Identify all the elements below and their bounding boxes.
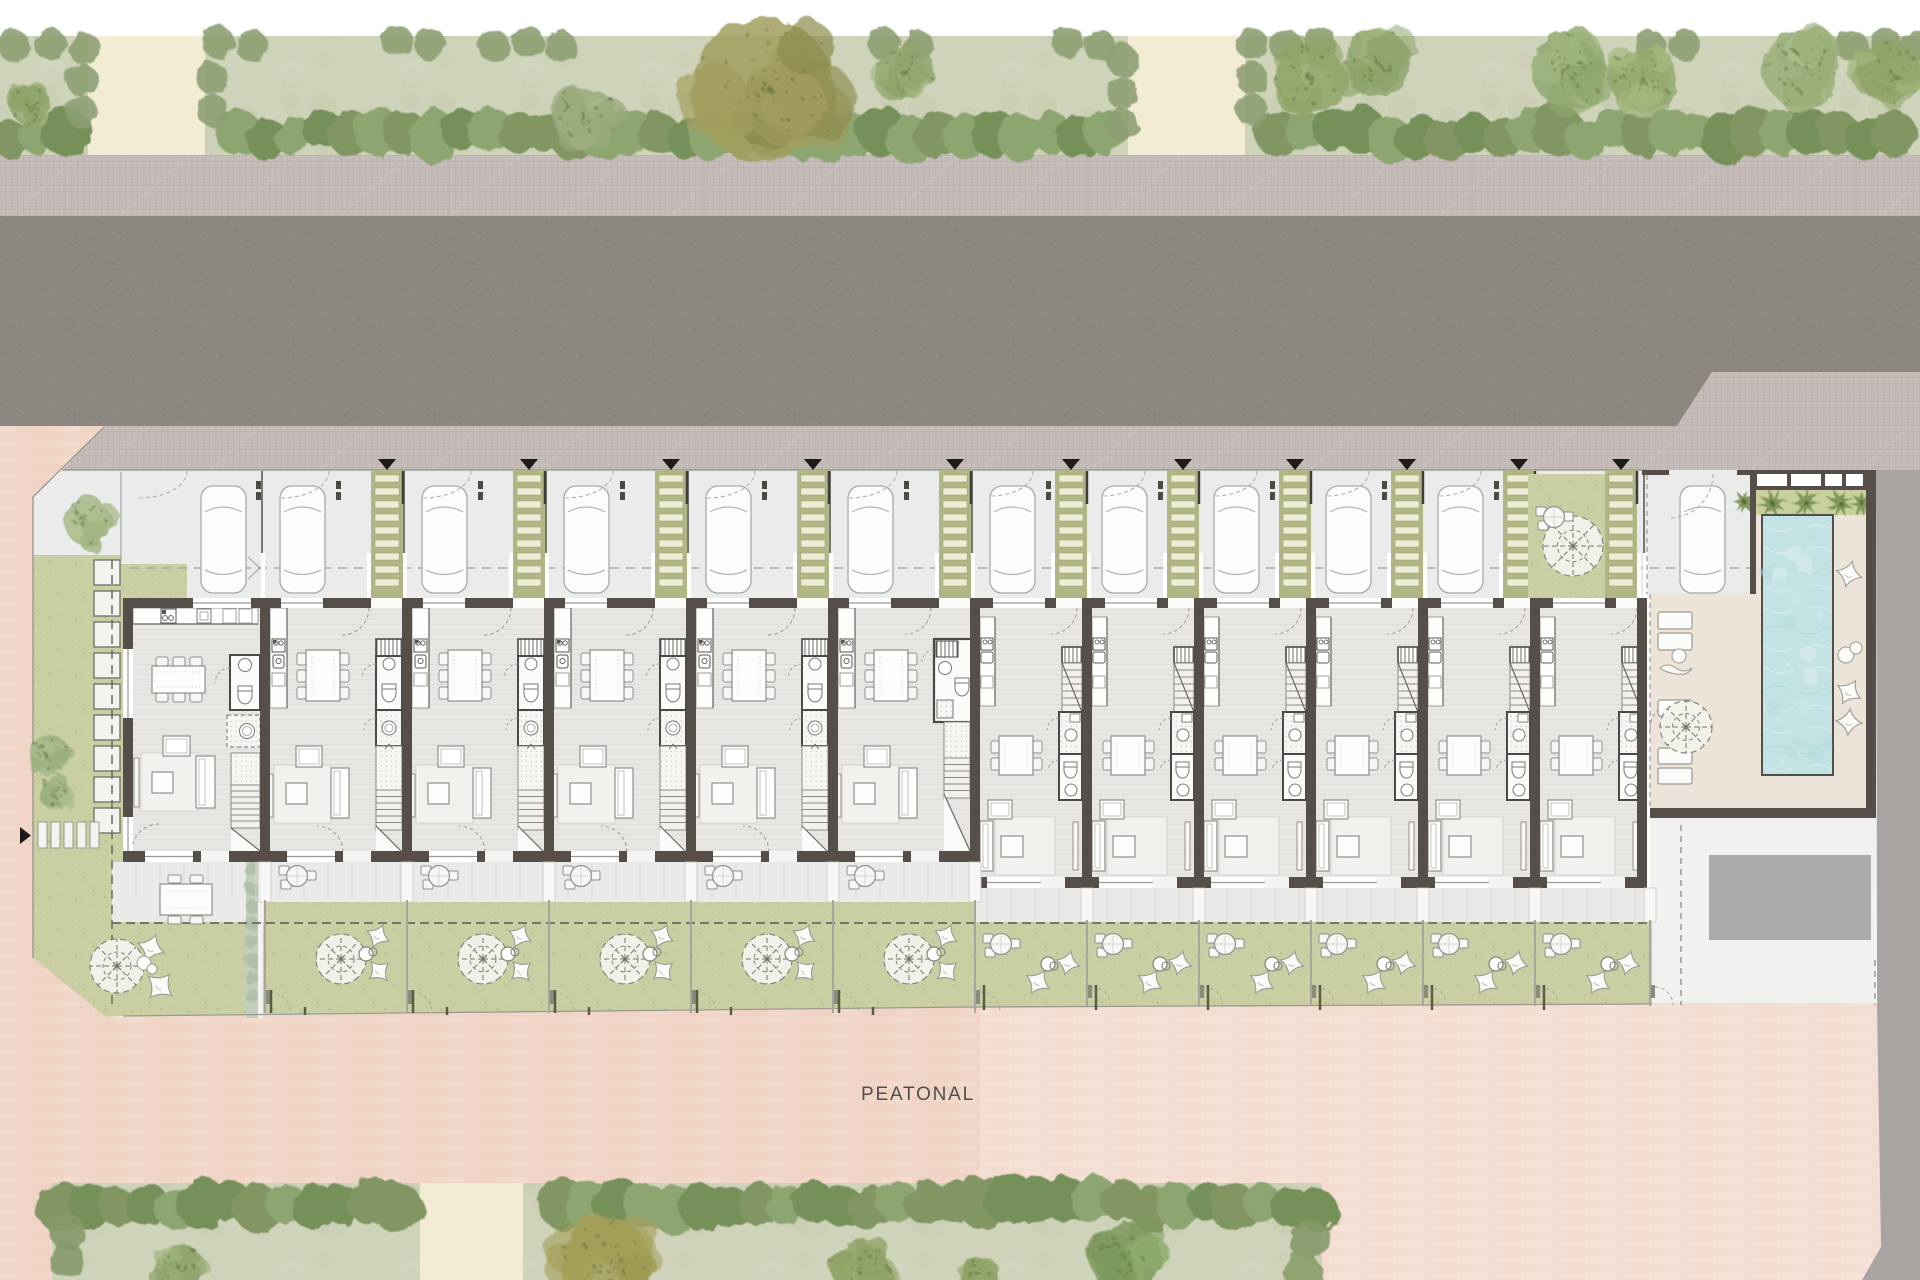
- svg-text:PEATONAL: PEATONAL: [861, 1084, 975, 1105]
